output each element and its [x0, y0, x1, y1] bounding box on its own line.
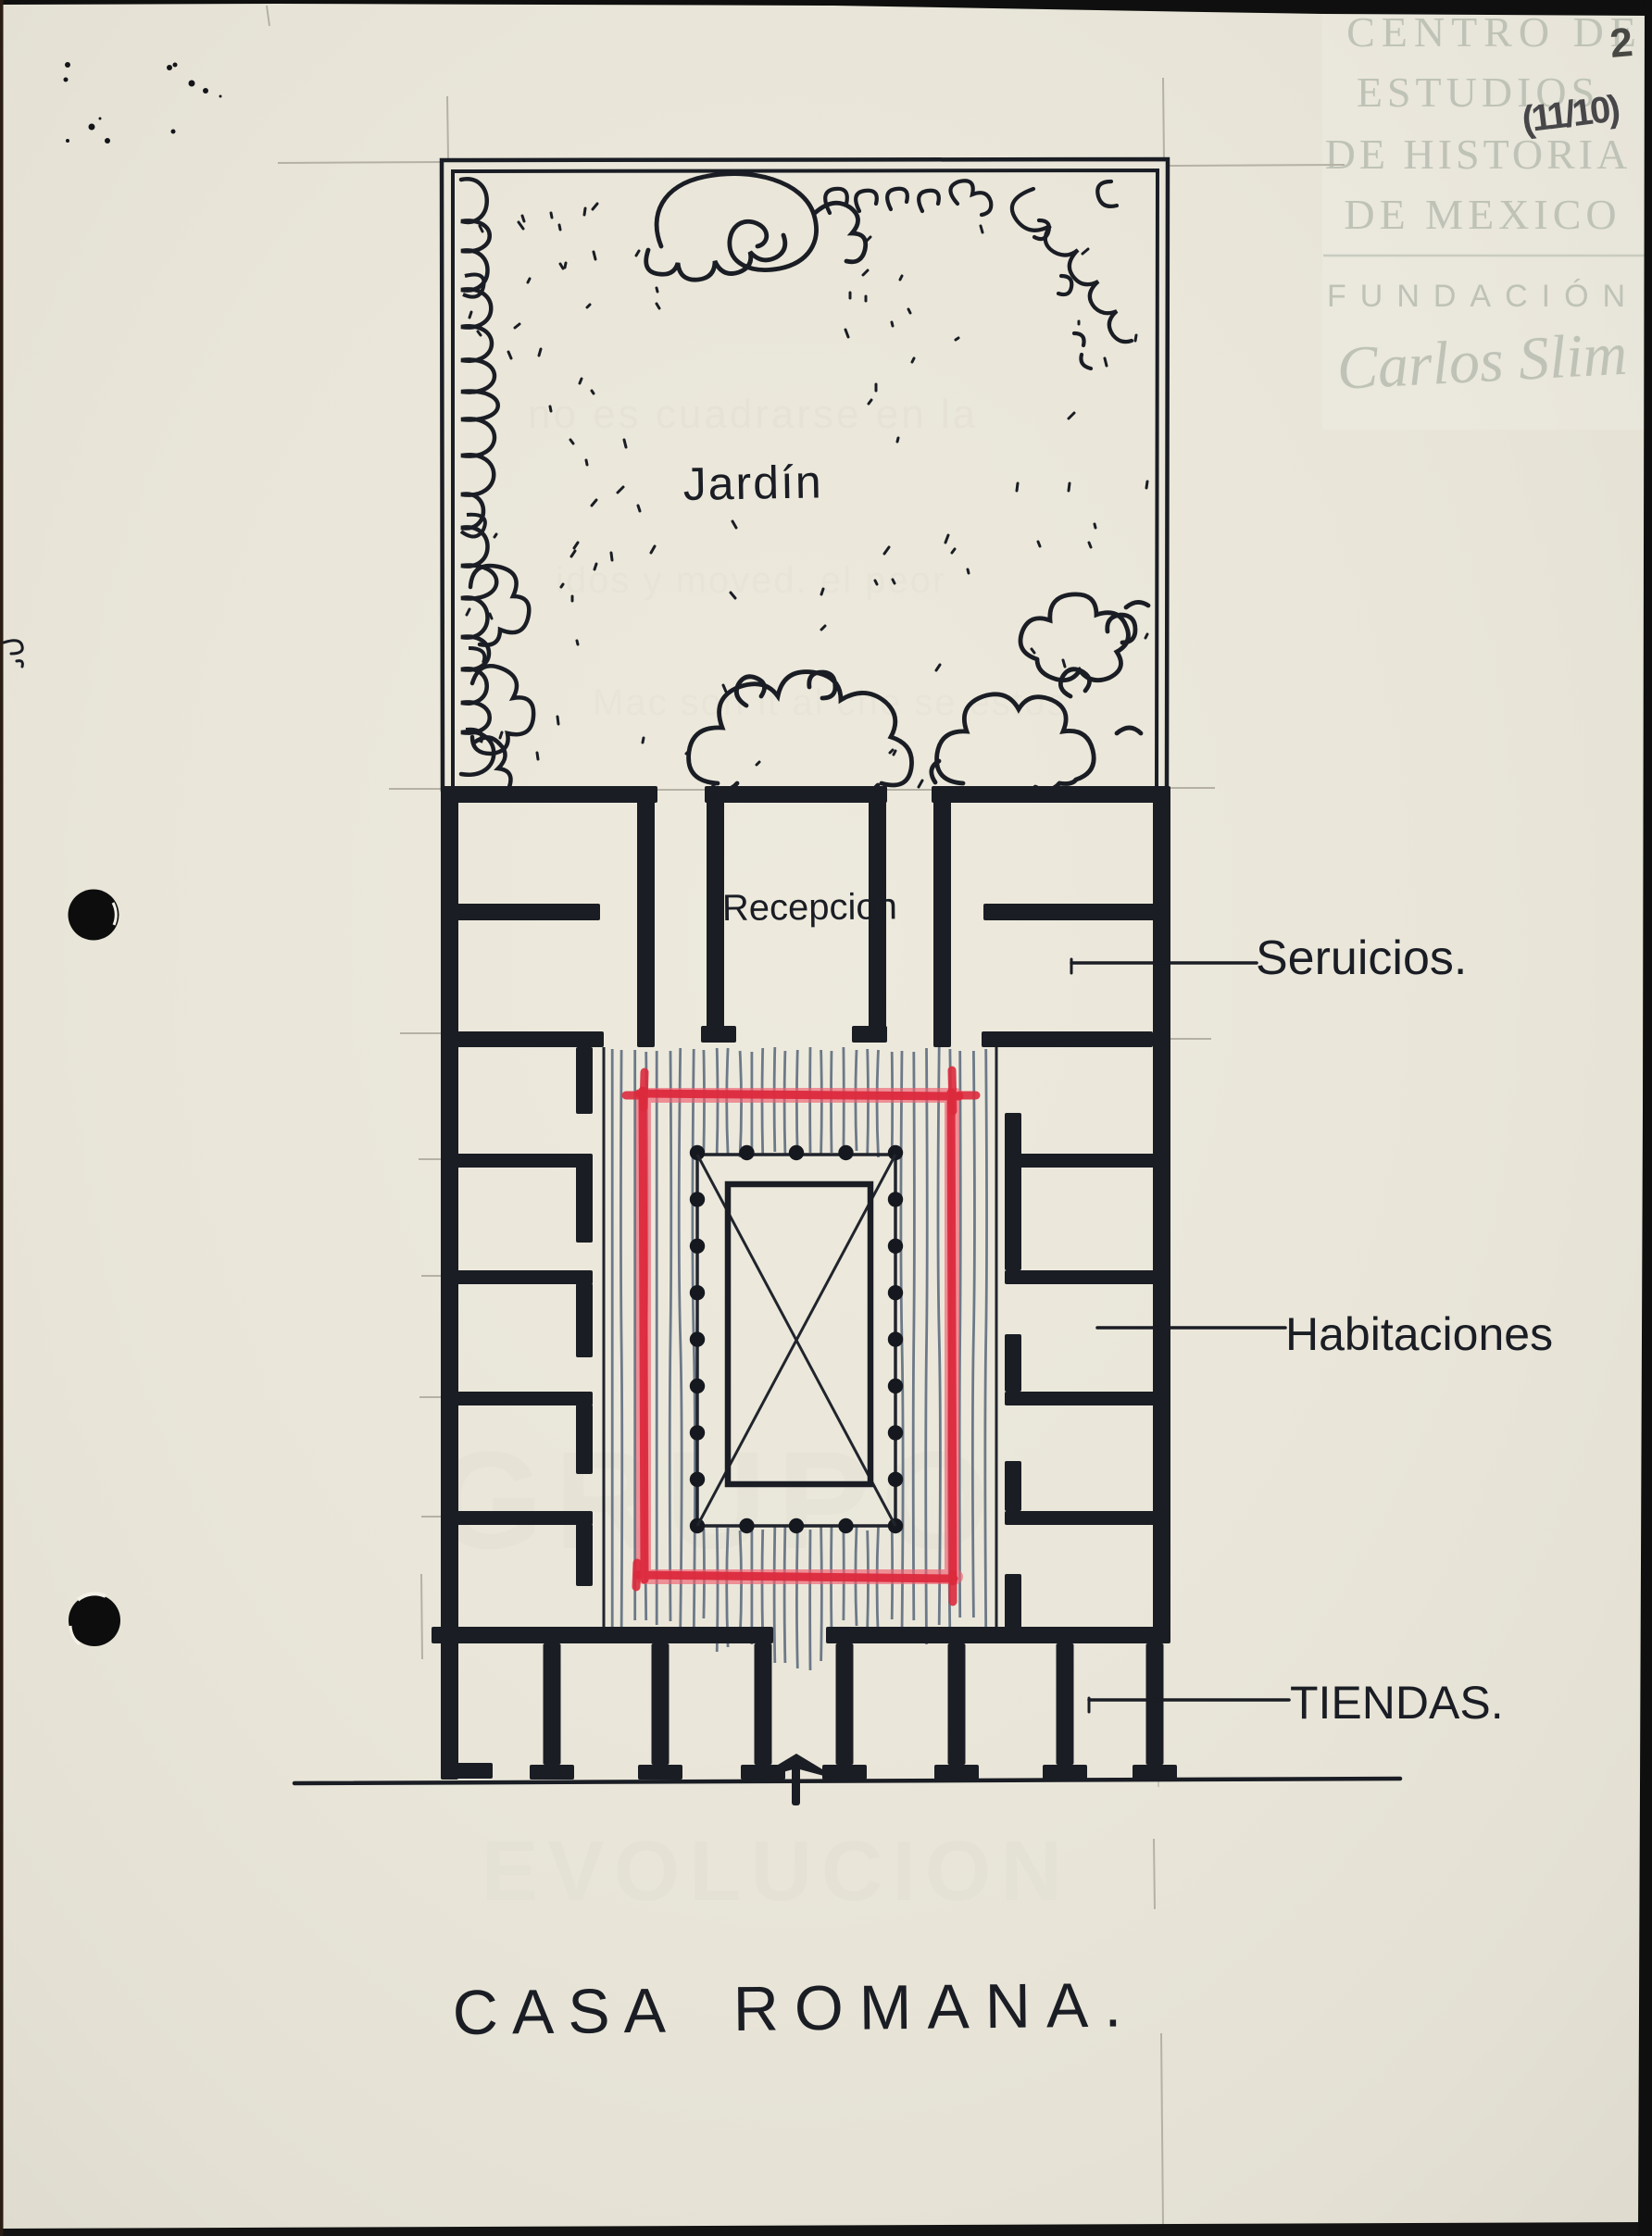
- svg-text:FUNDACIÓN: FUNDACIÓN: [1327, 279, 1639, 314]
- svg-text:EVOLUCION: EVOLUCION: [482, 1824, 1071, 1918]
- svg-text:ROMANA.: ROMANA.: [732, 1969, 1137, 2044]
- svg-text:DE HISTORIA: DE HISTORIA: [1325, 131, 1632, 178]
- svg-text:TIENDAS.: TIENDAS.: [1290, 1677, 1504, 1729]
- svg-text:CASA: CASA: [452, 1975, 680, 2048]
- svg-text:Jardín: Jardín: [682, 456, 823, 510]
- svg-text:idos y moved. el peor: idos y moved. el peor: [556, 560, 946, 601]
- svg-text:no es cuadrarse en la: no es cuadrarse en la: [528, 392, 978, 437]
- svg-text:Seruicios.: Seruicios.: [1256, 931, 1467, 985]
- svg-text:DE MEXICO: DE MEXICO: [1344, 191, 1621, 238]
- svg-text:2: 2: [1608, 19, 1635, 67]
- svg-text:Recepcion: Recepcion: [722, 886, 897, 929]
- svg-text:Habitaciones: Habitaciones: [1285, 1308, 1553, 1360]
- svg-text:Mac son it al che se estos: Mac son it al che se estos: [593, 682, 1067, 723]
